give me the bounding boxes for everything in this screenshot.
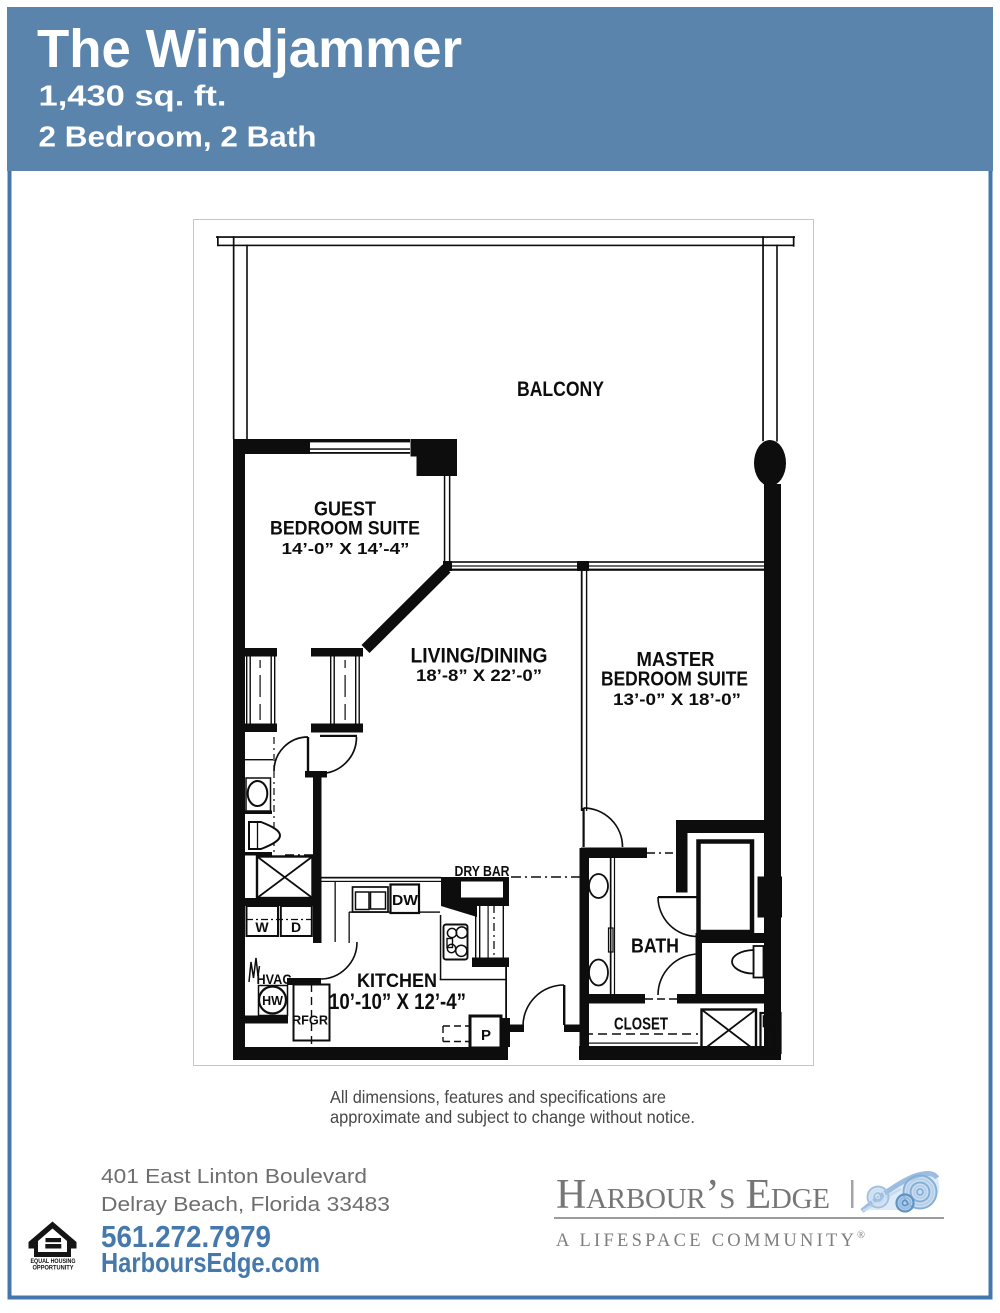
svg-text:BALCONY: BALCONY: [517, 378, 604, 401]
svg-text:401 East Linton Boulevard: 401 East Linton Boulevard: [101, 1165, 367, 1188]
svg-text:RFGR: RFGR: [292, 1013, 329, 1028]
svg-text:DW: DW: [392, 893, 418, 909]
svg-text:BEDROOM SUITE: BEDROOM SUITE: [270, 519, 420, 540]
svg-text:Delray Beach, Florida 33483: Delray Beach, Florida 33483: [101, 1193, 390, 1216]
svg-text:2 Bedroom, 2 Bath: 2 Bedroom, 2 Bath: [39, 122, 317, 154]
svg-text:P: P: [481, 1027, 491, 1044]
svg-text:The Windjammer: The Windjammer: [37, 19, 462, 79]
svg-text:HarboursEdge.com: HarboursEdge.com: [101, 1247, 320, 1278]
svg-text:®: ®: [857, 1230, 865, 1241]
svg-text:BEDROOM SUITE: BEDROOM SUITE: [601, 669, 748, 691]
svg-text:BATH: BATH: [631, 936, 679, 958]
svg-text:D: D: [291, 919, 301, 935]
svg-text:All dimensions, features and s: All dimensions, features and specificati…: [330, 1087, 666, 1107]
svg-text:14’-0” X 14’-4”: 14’-0” X 14’-4”: [282, 541, 410, 558]
svg-text:approximate and subject to cha: approximate and subject to change withou…: [330, 1107, 695, 1127]
svg-text:CLOSET: CLOSET: [614, 1014, 668, 1034]
svg-text:HW: HW: [262, 994, 283, 1008]
svg-text:GUEST: GUEST: [314, 499, 376, 521]
svg-text:18’-8” X 22’-0”: 18’-8” X 22’-0”: [416, 667, 542, 685]
svg-text:1,430 sq. ft.: 1,430 sq. ft.: [39, 81, 227, 113]
svg-text:10’-10” X 12’-4”: 10’-10” X 12’-4”: [329, 989, 466, 1014]
svg-text:DRY BAR: DRY BAR: [455, 864, 510, 880]
svg-text:LIVING/DINING: LIVING/DINING: [411, 645, 548, 668]
svg-text:Harbour’s Edge: Harbour’s Edge: [556, 1172, 830, 1218]
svg-text:13’-0” X 18’-0”: 13’-0” X 18’-0”: [613, 691, 741, 709]
svg-text:OPPORTUNITY: OPPORTUNITY: [33, 1265, 74, 1272]
svg-text:W: W: [255, 919, 269, 935]
